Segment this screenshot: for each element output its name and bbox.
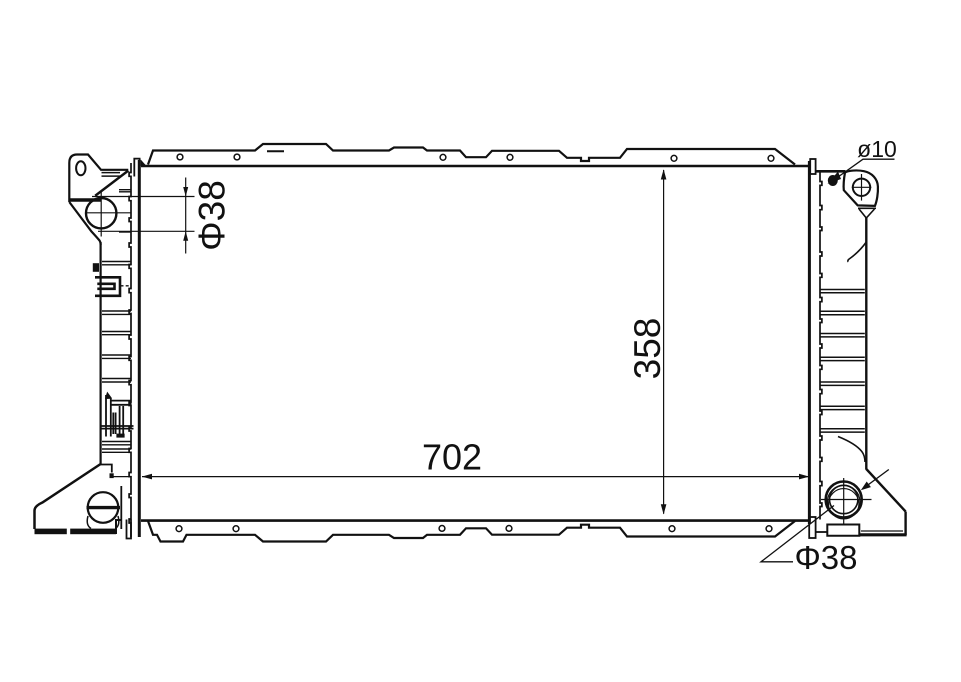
svg-text:ø10: ø10 <box>857 136 897 162</box>
svg-text:Φ38: Φ38 <box>794 539 857 576</box>
svg-text:358: 358 <box>627 318 668 380</box>
svg-text:Φ38: Φ38 <box>192 180 233 251</box>
svg-text:702: 702 <box>422 437 482 478</box>
